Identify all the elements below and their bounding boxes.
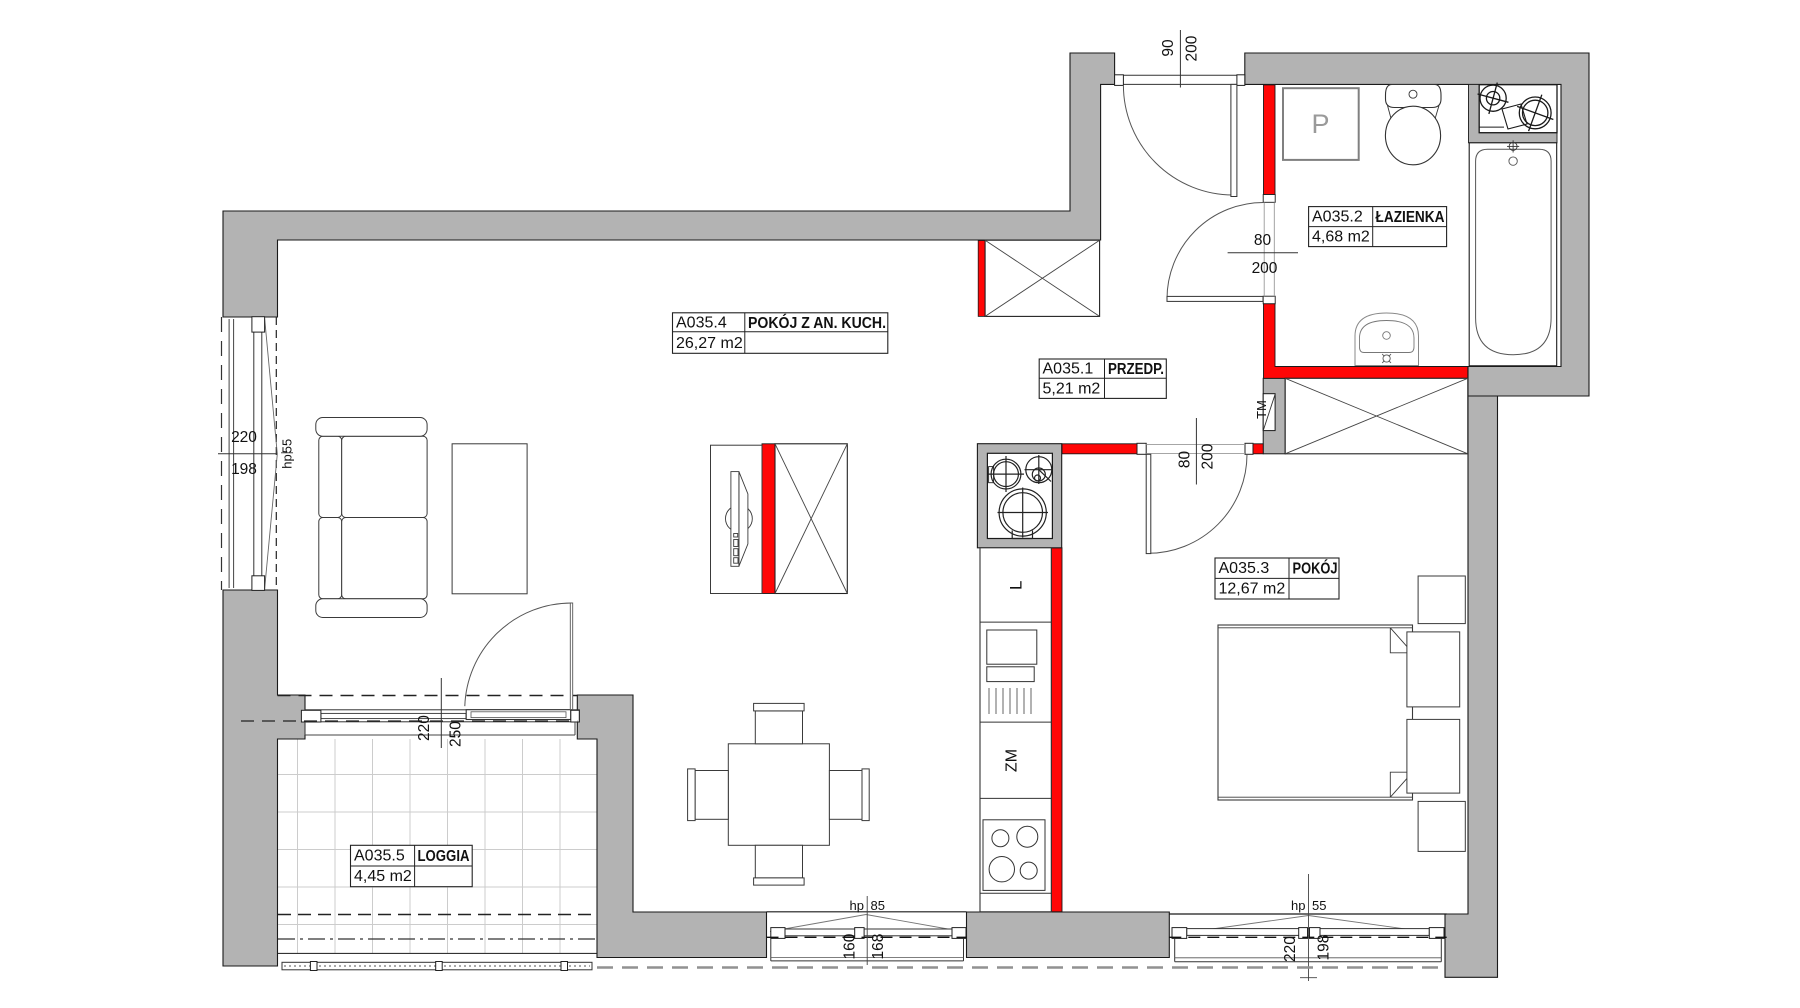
svg-text:200: 200	[1200, 443, 1217, 469]
svg-text:55: 55	[280, 439, 295, 453]
svg-text:160: 160	[842, 933, 859, 959]
svg-text:ZM: ZM	[1004, 749, 1021, 772]
svg-text:90: 90	[1160, 39, 1177, 57]
svg-text:P: P	[1311, 109, 1329, 139]
svg-text:220: 220	[1282, 936, 1299, 962]
svg-text:hp: hp	[1291, 898, 1305, 913]
svg-text:A035.2: A035.2	[1312, 209, 1363, 226]
svg-text:A035.3: A035.3	[1219, 560, 1270, 577]
svg-text:85: 85	[871, 898, 885, 913]
svg-text:26,27 m2: 26,27 m2	[676, 335, 743, 352]
svg-text:4,68 m2: 4,68 m2	[1312, 229, 1370, 246]
svg-text:168: 168	[870, 934, 887, 960]
svg-text:PRZEDP.: PRZEDP.	[1108, 361, 1164, 378]
svg-text:LOGGIA: LOGGIA	[418, 848, 470, 865]
svg-text:ŁAZIENKA: ŁAZIENKA	[1376, 209, 1445, 226]
svg-text:POKÓJ Z AN. KUCH.: POKÓJ Z AN. KUCH.	[748, 313, 886, 332]
svg-text:80: 80	[1177, 451, 1194, 469]
svg-text:198: 198	[1316, 935, 1333, 961]
svg-text:5,21 m2: 5,21 m2	[1043, 381, 1101, 398]
svg-text:200: 200	[1252, 260, 1278, 277]
svg-text:A035.1: A035.1	[1043, 361, 1094, 378]
svg-text:A035.5: A035.5	[354, 848, 405, 865]
svg-text:POKÓJ: POKÓJ	[1293, 559, 1338, 578]
svg-text:55: 55	[1312, 898, 1326, 913]
svg-text:hp: hp	[280, 454, 295, 468]
svg-text:220: 220	[416, 715, 433, 741]
svg-text:L: L	[1006, 581, 1025, 590]
svg-text:220: 220	[231, 429, 257, 446]
svg-text:4,45 m2: 4,45 m2	[354, 868, 412, 885]
svg-text:TM: TM	[1254, 400, 1269, 419]
svg-text:A035.4: A035.4	[676, 315, 727, 332]
svg-text:250: 250	[448, 721, 465, 747]
svg-text:198: 198	[231, 461, 257, 478]
svg-text:hp: hp	[850, 898, 864, 913]
svg-text:12,67 m2: 12,67 m2	[1219, 581, 1286, 598]
svg-text:200: 200	[1184, 35, 1201, 61]
svg-text:80: 80	[1254, 232, 1272, 249]
